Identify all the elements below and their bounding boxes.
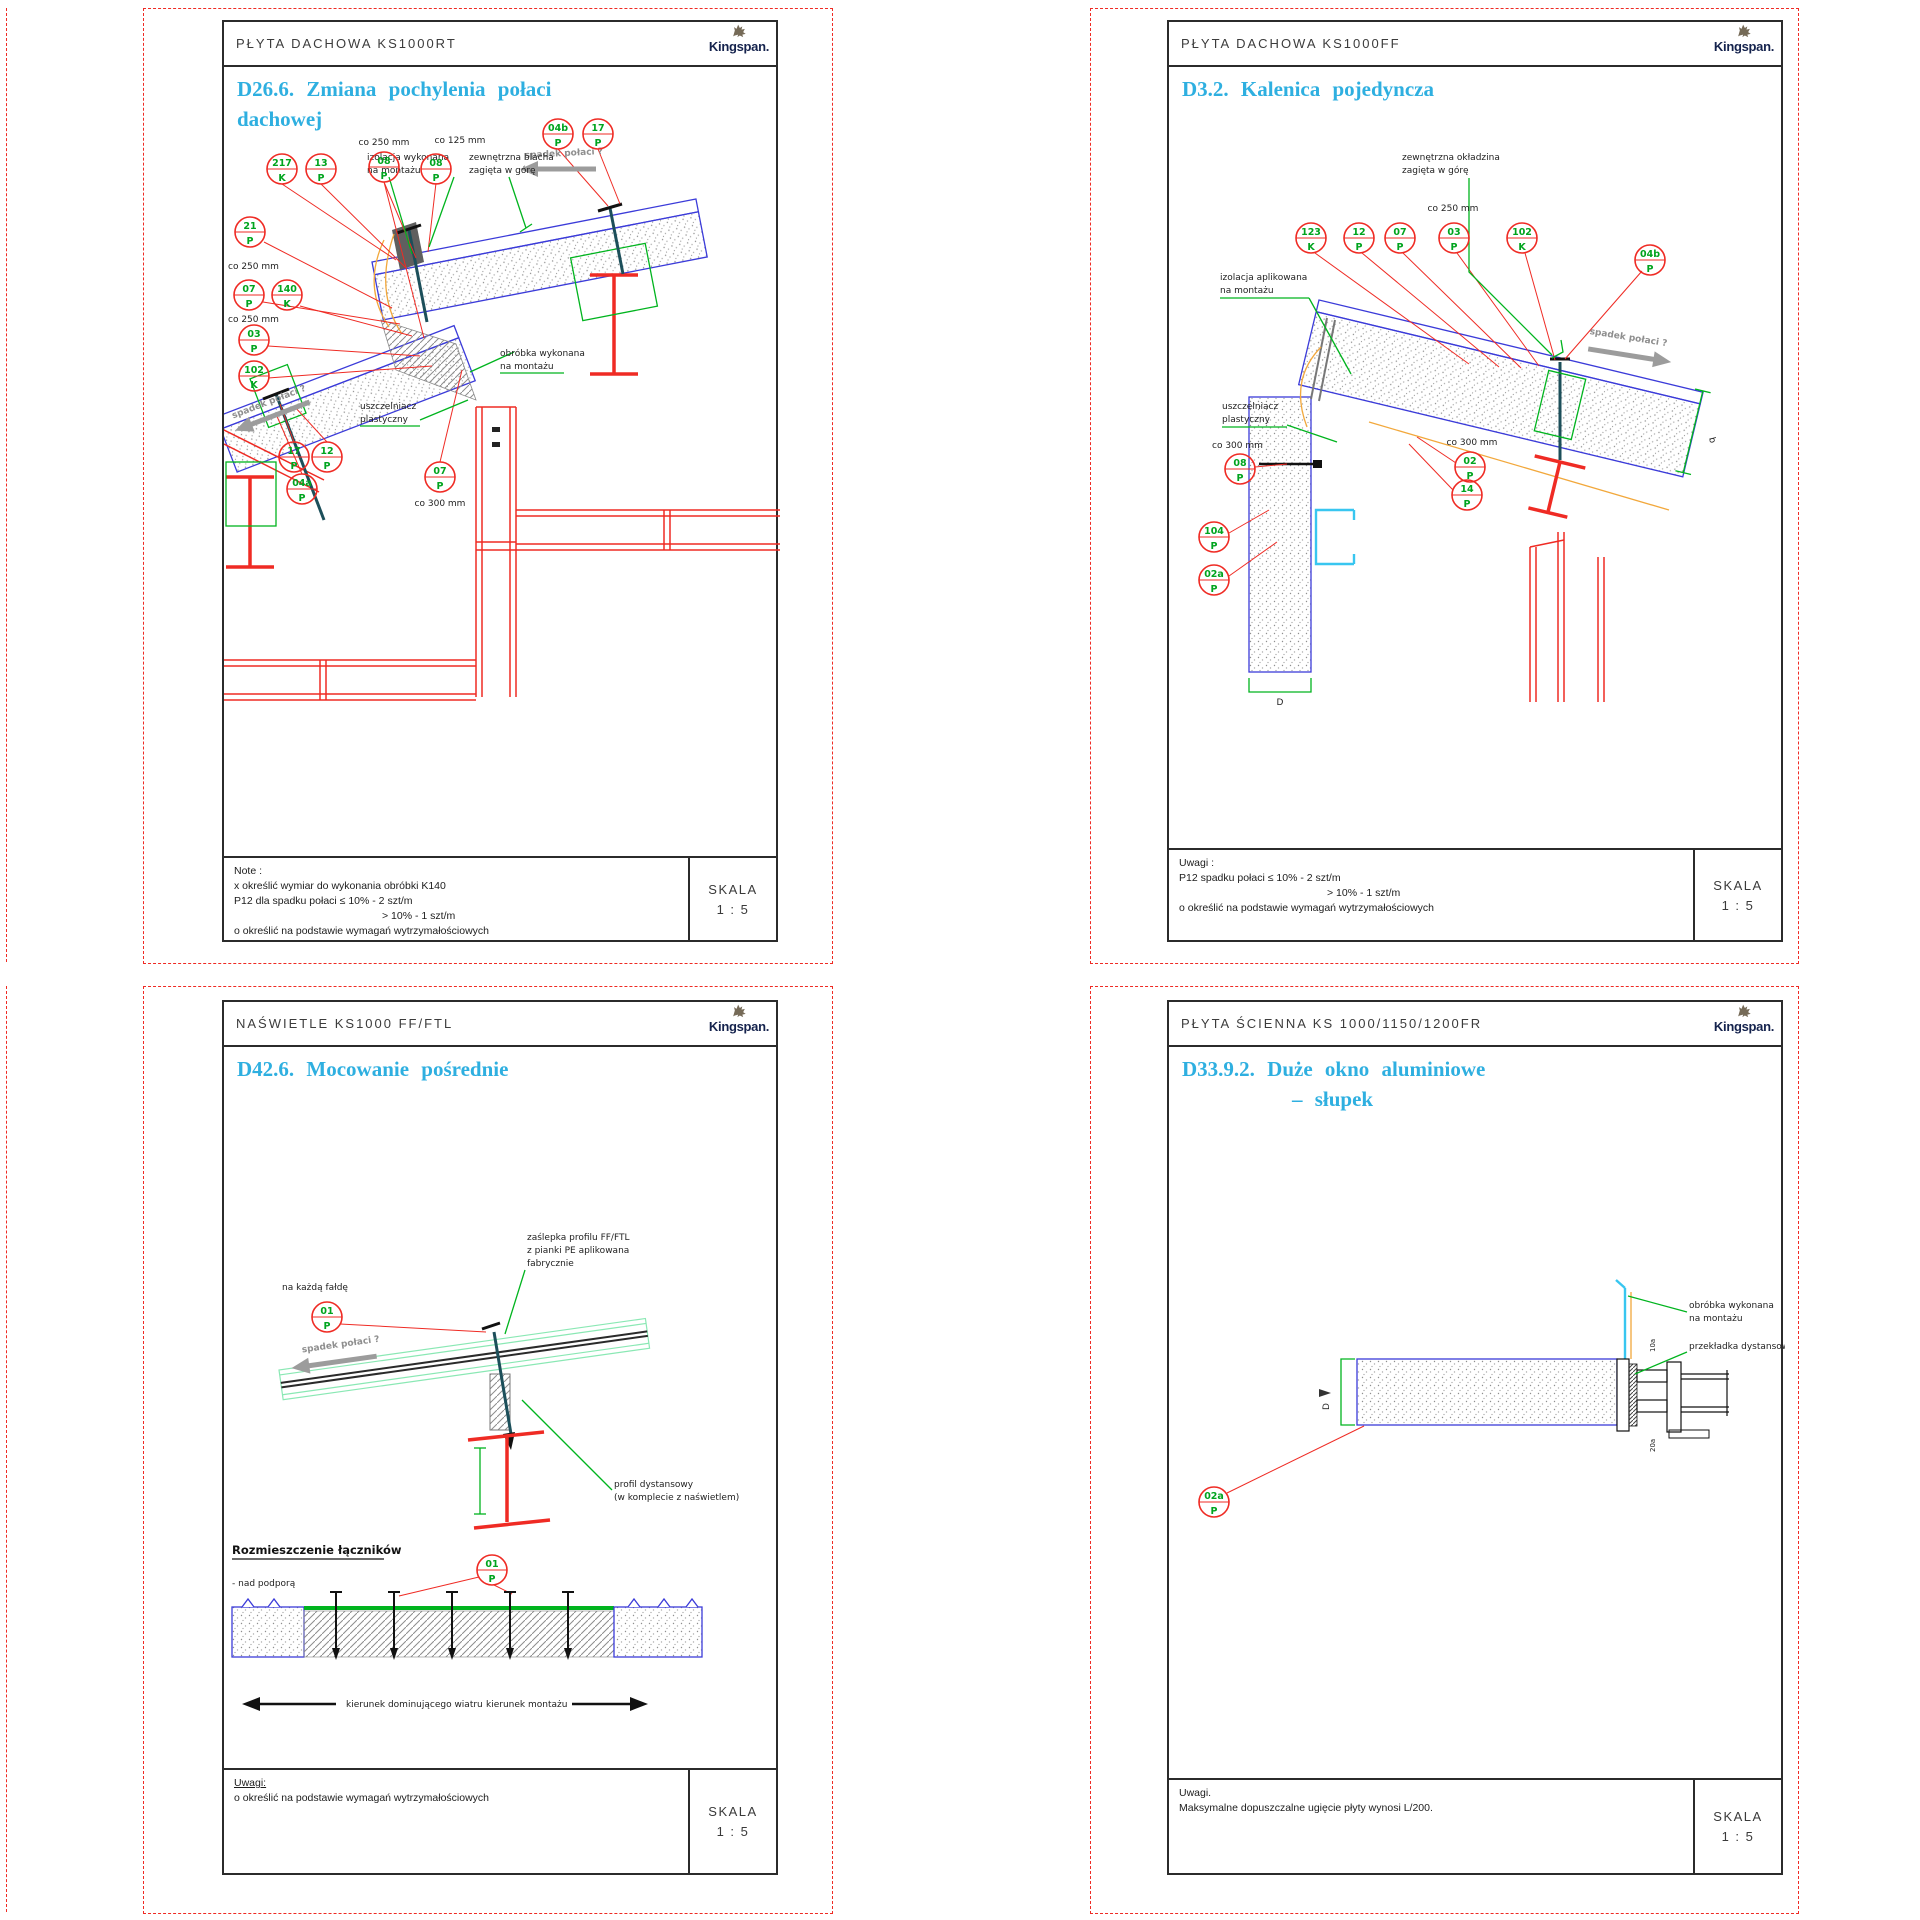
kingspan-logo-text: Kingspan.: [1712, 1020, 1776, 1033]
scale-value: 1 : 5: [717, 1824, 750, 1839]
svg-text:K: K: [283, 299, 291, 310]
callout-02a-P: 02aP: [1199, 1487, 1229, 1517]
annotation-profil: profil dystansowy (w komplecie z naświet…: [614, 1480, 739, 1503]
callout-21-P: 21P: [235, 217, 265, 247]
scale-label: SKALA: [1713, 878, 1762, 893]
callout-12-P: 12P: [312, 442, 342, 472]
title-line: D42.6. Mocowanie pośrednie: [237, 1054, 508, 1084]
sheet-header-bl: NAŚWIETLE KS1000 FF/FTL Kingspan.: [224, 1002, 776, 1047]
dim-b-label: b: [1706, 436, 1717, 444]
svg-text:01: 01: [320, 1306, 333, 1317]
kingspan-lion-icon: [729, 1003, 749, 1018]
note-line: x określić wymiar do wykonania obróbki K…: [234, 879, 678, 894]
notes-br: Uwagi. Maksymalne dopuszczalne ugięcie p…: [1169, 1780, 1693, 1873]
spacing-label: co 125 mm: [435, 136, 486, 146]
annotation-blacha: zewnętrzna blacha zagięta w górę: [469, 153, 554, 176]
svg-text:12: 12: [1352, 227, 1365, 238]
svg-text:102: 102: [244, 365, 264, 376]
note-line: Maksymalne dopuszczalne ugięcie płyty wy…: [1179, 1801, 1683, 1816]
title-line: – słupek: [1182, 1084, 1485, 1114]
svg-text:D: D: [1322, 1403, 1332, 1410]
note-line: P12 dla spadku połaci ≤ 10% - 2 szt/m: [234, 894, 678, 909]
annotation-przekladka: przekładka dystansowa: [1635, 1342, 1785, 1374]
annotation-izolacja: izolacja aplikowana na montażu: [1220, 273, 1307, 296]
svg-text:P: P: [555, 138, 562, 149]
svg-text:07: 07: [433, 466, 446, 477]
svg-text:17: 17: [287, 446, 300, 457]
svg-text:zagięta w górę: zagięta w górę: [469, 165, 536, 176]
svg-text:uszczelniacz: uszczelniacz: [360, 402, 416, 412]
scale-label: SKALA: [708, 1804, 757, 1819]
svg-text:P: P: [489, 1574, 496, 1585]
callout-02a-P: 02aP: [1199, 565, 1229, 595]
scale-box: SKALA 1 : 5: [688, 858, 776, 940]
annotation-obrobka: obróbka wykonana na montażu: [500, 348, 585, 372]
sheet-bottom-right: PŁYTA ŚCIENNA KS 1000/1150/1200FR Kingsp…: [1167, 1000, 1783, 1875]
panel-model-label: NAŚWIETLE KS1000 FF/FTL: [236, 1016, 453, 1031]
kingspan-lion-icon: [1734, 1003, 1754, 1018]
fastener-layout-heading: Rozmieszczenie łączników - nad podporą: [232, 1543, 402, 1589]
drawing-tr: D: [1169, 112, 1785, 852]
svg-text:04a: 04a: [292, 478, 312, 489]
callout-102-K: 102K: [1507, 223, 1537, 253]
svg-text:obróbka wykonana: obróbka wykonana: [500, 348, 585, 359]
svg-text:12: 12: [320, 446, 333, 457]
svg-text:P: P: [1211, 1506, 1218, 1517]
svg-text:K: K: [250, 380, 258, 391]
callout-04b-P: 04bP: [1635, 245, 1665, 275]
ridge-steel-beam: [1523, 456, 1586, 519]
note-line: o określić na podstawie wymagań wytrzyma…: [234, 1791, 678, 1806]
sheet-header-br: PŁYTA ŚCIENNA KS 1000/1150/1200FR Kingsp…: [1169, 1002, 1781, 1047]
c-channel: [1316, 510, 1354, 564]
svg-text:02a: 02a: [1204, 1491, 1224, 1502]
svg-text:z pianki PE aplikowana: z pianki PE aplikowana: [527, 1246, 629, 1256]
note-line: Note :: [234, 864, 678, 879]
callout-102-K: 102K: [239, 361, 269, 391]
sheet-header-tl: PŁYTA DACHOWA KS1000RT Kingspan.: [224, 22, 776, 67]
svg-text:Rozmieszczenie łączników: Rozmieszczenie łączników: [232, 1543, 402, 1557]
svg-text:21: 21: [243, 221, 256, 232]
annotation-obrobka: obróbka wykonana na montażu: [1628, 1296, 1774, 1324]
svg-text:izolacja aplikowana: izolacja aplikowana: [1220, 273, 1307, 283]
spacing-label: co 300 mm: [1212, 441, 1263, 451]
drawing-tl: spadek połaci ? spadek połaci ? co 250 m…: [224, 112, 780, 860]
svg-text:08: 08: [1233, 458, 1247, 469]
title-line: D3.2. Kalenica pojedyncza: [1182, 74, 1434, 104]
svg-text:P: P: [1464, 499, 1471, 510]
svg-text:- nad podporą: - nad podporą: [232, 1579, 296, 1589]
svg-text:na montażu: na montażu: [500, 362, 554, 372]
svg-text:plastyczny: plastyczny: [360, 415, 409, 425]
panel-model-label: PŁYTA DACHOWA KS1000RT: [236, 36, 457, 51]
spacing-label: co 250 mm: [1428, 204, 1479, 214]
svg-text:P: P: [1211, 584, 1218, 595]
svg-text:zewnętrzna okładzina: zewnętrzna okładzina: [1402, 153, 1500, 163]
svg-text:P: P: [595, 138, 602, 149]
note-line: > 10% - 1 szt/m: [1179, 886, 1683, 901]
svg-text:P: P: [324, 461, 331, 472]
callout-01-P-2: 01P: [477, 1555, 507, 1585]
callout-07-P: 07P: [1385, 223, 1415, 253]
svg-text:P: P: [246, 299, 253, 310]
kingspan-lion-icon: [729, 23, 749, 38]
center-steel-column: [476, 407, 516, 697]
svg-text:K: K: [278, 173, 286, 184]
svg-text:K: K: [1307, 242, 1315, 253]
dim-d-bracket: D: [1319, 1359, 1355, 1425]
svg-text:P: P: [1237, 473, 1244, 484]
notes-tl: Note : x określić wymiar do wykonania ob…: [224, 858, 688, 940]
callout-04b-P: 04bP: [543, 119, 573, 149]
ridge-roof-panel: [1299, 300, 1703, 477]
spacing-label: co 250 mm: [359, 138, 410, 148]
svg-text:zewnętrzna blacha: zewnętrzna blacha: [469, 153, 554, 163]
note-line: o określić na podstawie wymagań wytrzyma…: [1179, 901, 1683, 916]
kingspan-logo-text: Kingspan.: [707, 1020, 771, 1033]
svg-text:uszczelniacz: uszczelniacz: [1222, 402, 1278, 412]
svg-text:zaślepka profilu FF/FTL: zaślepka profilu FF/FTL: [527, 1232, 629, 1243]
svg-text:D: D: [1277, 698, 1284, 708]
scale-value: 1 : 5: [1722, 1829, 1755, 1844]
callout-08-P: 08P: [369, 152, 399, 182]
svg-text:17: 17: [591, 123, 604, 134]
callout-17-P: 17P: [583, 119, 613, 149]
svg-text:kierunek dominującego wiatru: kierunek dominującego wiatru: [346, 1700, 483, 1710]
drawing-br: D 10a 20a obróbka wykonana na montażu: [1169, 1112, 1785, 1782]
svg-text:P: P: [1451, 242, 1458, 253]
svg-text:P: P: [324, 1321, 331, 1332]
spacing-label: co 300 mm: [415, 499, 466, 509]
svg-text:01: 01: [485, 1559, 498, 1570]
svg-text:08: 08: [429, 158, 443, 169]
title-line: D33.9.2. Duże okno aluminiowe: [1182, 1054, 1485, 1084]
svg-text:04b: 04b: [548, 123, 568, 134]
kingspan-logo: Kingspan.: [707, 23, 771, 53]
svg-text:P: P: [433, 173, 440, 184]
svg-text:P: P: [1356, 242, 1363, 253]
sheet-bottom-left: NAŚWIETLE KS1000 FF/FTL Kingspan. D42.6.…: [222, 1000, 778, 1875]
panel-model-label: PŁYTA ŚCIENNA KS 1000/1150/1200FR: [1181, 1016, 1482, 1031]
sheet-footer-tl: Note : x określić wymiar do wykonania ob…: [224, 856, 776, 940]
notes-tr: Uwagi : P12 spadku połaci ≤ 10% - 2 szt/…: [1169, 850, 1693, 940]
kingspan-logo: Kingspan.: [707, 1003, 771, 1033]
panel-cross-section: [232, 1599, 702, 1657]
right-steel-beam: [590, 275, 638, 374]
svg-text:P: P: [247, 236, 254, 247]
annotation-kazda: na każdą fałdę: [282, 1283, 348, 1293]
title-line: D26.6. Zmiana pochylenia połaci: [237, 74, 551, 104]
svg-text:spadek połaci ?: spadek połaci ?: [301, 1335, 380, 1356]
callout-140-K: 140K: [272, 280, 302, 310]
scale-box: SKALA 1 : 5: [688, 1770, 776, 1873]
svg-text:104: 104: [1204, 526, 1224, 537]
svg-text:plastyczny: plastyczny: [1222, 415, 1271, 425]
svg-text:20a: 20a: [1649, 1439, 1657, 1452]
scale-value: 1 : 5: [1722, 898, 1755, 913]
sheet-top-left: PŁYTA DACHOWA KS1000RT Kingspan. D26.6. …: [222, 20, 778, 942]
svg-text:140: 140: [277, 284, 297, 295]
svg-text:07: 07: [242, 284, 255, 295]
svg-text:P: P: [251, 344, 258, 355]
drawing-bl: spadek połaci ?: [224, 1102, 780, 1772]
svg-text:przekładka dystansowa: przekładka dystansowa: [1689, 1342, 1785, 1352]
annotation-zaslepka: zaślepka profilu FF/FTL z pianki PE apli…: [527, 1232, 629, 1269]
spacing-label: co 300 mm: [1447, 438, 1498, 448]
svg-text:08: 08: [377, 156, 391, 167]
cut-edge-bottom: [6, 986, 7, 1912]
scale-label: SKALA: [1713, 1809, 1762, 1824]
note-line: P12 spadku połaci ≤ 10% - 2 szt/m: [1179, 871, 1683, 886]
callout-leader: [1227, 1426, 1364, 1493]
scale-box: SKALA 1 : 5: [1693, 1780, 1781, 1873]
svg-text:spadek połaci ?: spadek połaci ?: [1589, 327, 1668, 349]
callout-04a-P: 04aP: [287, 474, 317, 504]
svg-text:P: P: [437, 481, 444, 492]
kingspan-logo: Kingspan.: [1712, 23, 1776, 53]
red-wall-lines: [1530, 532, 1604, 702]
direction-arrows: kierunek dominującego wiatru kierunek mo…: [242, 1697, 648, 1711]
sheet-top-right: PŁYTA DACHOWA KS1000FF Kingspan. D3.2. K…: [1167, 20, 1783, 942]
svg-text:zagięta w górę: zagięta w górę: [1402, 165, 1469, 176]
callout-12-P: 12P: [1344, 223, 1374, 253]
svg-text:P: P: [381, 171, 388, 182]
scale-label: SKALA: [708, 882, 757, 897]
svg-text:123: 123: [1301, 227, 1321, 238]
right-horizontal-beams: [516, 510, 780, 550]
sheet-footer-br: Uwagi. Maksymalne dopuszczalne ugięcie p…: [1169, 1778, 1781, 1873]
svg-text:obróbka wykonana: obróbka wykonana: [1689, 1300, 1774, 1311]
svg-text:P: P: [1647, 264, 1654, 275]
kingspan-logo-text: Kingspan.: [1712, 40, 1776, 53]
callout-08-P-2: 08P: [421, 154, 451, 184]
scale-box: SKALA 1 : 5: [1693, 850, 1781, 940]
callout-07-P: 07P: [234, 280, 264, 310]
svg-text:02a: 02a: [1204, 569, 1224, 580]
svg-text:P: P: [291, 461, 298, 472]
note-line: > 10% - 1 szt/m: [234, 909, 678, 924]
svg-text:kierunek montażu: kierunek montażu: [486, 1700, 567, 1710]
svg-text:profil dystansowy: profil dystansowy: [614, 1480, 694, 1490]
sheet-title-br: D33.9.2. Duże okno aluminiowe – słupek: [1182, 1054, 1485, 1114]
callout-123-K: 123K: [1296, 223, 1326, 253]
svg-text:P: P: [1397, 242, 1404, 253]
note-line: o określić na podstawie wymagań wytrzyma…: [234, 924, 678, 939]
svg-text:10a: 10a: [1649, 1339, 1657, 1352]
callout-17-P-2: 17P: [279, 442, 309, 472]
svg-text:217: 217: [272, 158, 292, 169]
svg-text:03: 03: [1447, 227, 1460, 238]
spacing-label: co 250 mm: [228, 262, 279, 272]
svg-text:P: P: [299, 493, 306, 504]
kingspan-logo: Kingspan.: [1712, 1003, 1776, 1033]
callout-104-P: 104P: [1199, 522, 1229, 552]
svg-text:14: 14: [1460, 484, 1474, 495]
cut-edge-top: [6, 8, 7, 962]
sheet-title-tr: D3.2. Kalenica pojedyncza: [1182, 74, 1434, 104]
svg-text:K: K: [1518, 242, 1526, 253]
callout-03-P: 03P: [1439, 223, 1469, 253]
sheet-footer-tr: Uwagi : P12 spadku połaci ≤ 10% - 2 szt/…: [1169, 848, 1781, 940]
kingspan-lion-icon: [1734, 23, 1754, 38]
callout-08-P: 08P: [1225, 454, 1255, 484]
svg-text:02: 02: [1463, 456, 1476, 467]
svg-text:(w komplecie z naświetlem): (w komplecie z naświetlem): [614, 1492, 739, 1503]
note-line: Uwagi :: [1179, 856, 1683, 871]
sheet-header-tr: PŁYTA DACHOWA KS1000FF Kingspan.: [1169, 22, 1781, 67]
spacing-label: co 250 mm: [228, 315, 279, 325]
callout-01-P: 01P: [312, 1302, 342, 1332]
svg-text:13: 13: [314, 158, 327, 169]
svg-text:fabrycznie: fabrycznie: [527, 1259, 574, 1269]
svg-text:na montażu: na montażu: [1689, 1314, 1743, 1324]
svg-text:03: 03: [247, 329, 260, 340]
callout-14-P: 14P: [1452, 480, 1482, 510]
note-line: Uwagi.: [1179, 1786, 1683, 1801]
callout-07-P-2: 07P: [425, 462, 455, 492]
sheet-footer-bl: Uwagi: o określić na podstawie wymagań w…: [224, 1768, 776, 1873]
callout-13-P: 13P: [306, 154, 336, 184]
left-horizontal-beams: [224, 660, 476, 700]
callout-03-P: 03P: [239, 325, 269, 355]
annotation-leaders: [505, 1270, 612, 1490]
callout-217-K: 217K: [267, 154, 297, 184]
svg-text:04b: 04b: [1640, 249, 1660, 260]
svg-text:07: 07: [1393, 227, 1406, 238]
wall-panel: [1357, 1359, 1617, 1425]
steel-beam: [468, 1432, 550, 1528]
note-line: Uwagi:: [234, 1776, 678, 1791]
sheet-title-bl: D42.6. Mocowanie pośrednie: [237, 1054, 508, 1084]
svg-text:P: P: [1211, 541, 1218, 552]
svg-text:na montażu: na montażu: [1220, 286, 1274, 296]
scale-value: 1 : 5: [717, 902, 750, 917]
callout-02-P: 02P: [1455, 452, 1485, 482]
annotation-zewnetrzna: zewnętrzna okładzina zagięta w górę: [1402, 153, 1500, 176]
kingspan-logo-text: Kingspan.: [707, 40, 771, 53]
notes-bl: Uwagi: o określić na podstawie wymagań w…: [224, 1770, 688, 1873]
panel-model-label: PŁYTA DACHOWA KS1000FF: [1181, 36, 1401, 51]
slope-arrow: spadek połaci ?: [1586, 327, 1675, 370]
svg-text:P: P: [318, 173, 325, 184]
svg-text:102: 102: [1512, 227, 1532, 238]
